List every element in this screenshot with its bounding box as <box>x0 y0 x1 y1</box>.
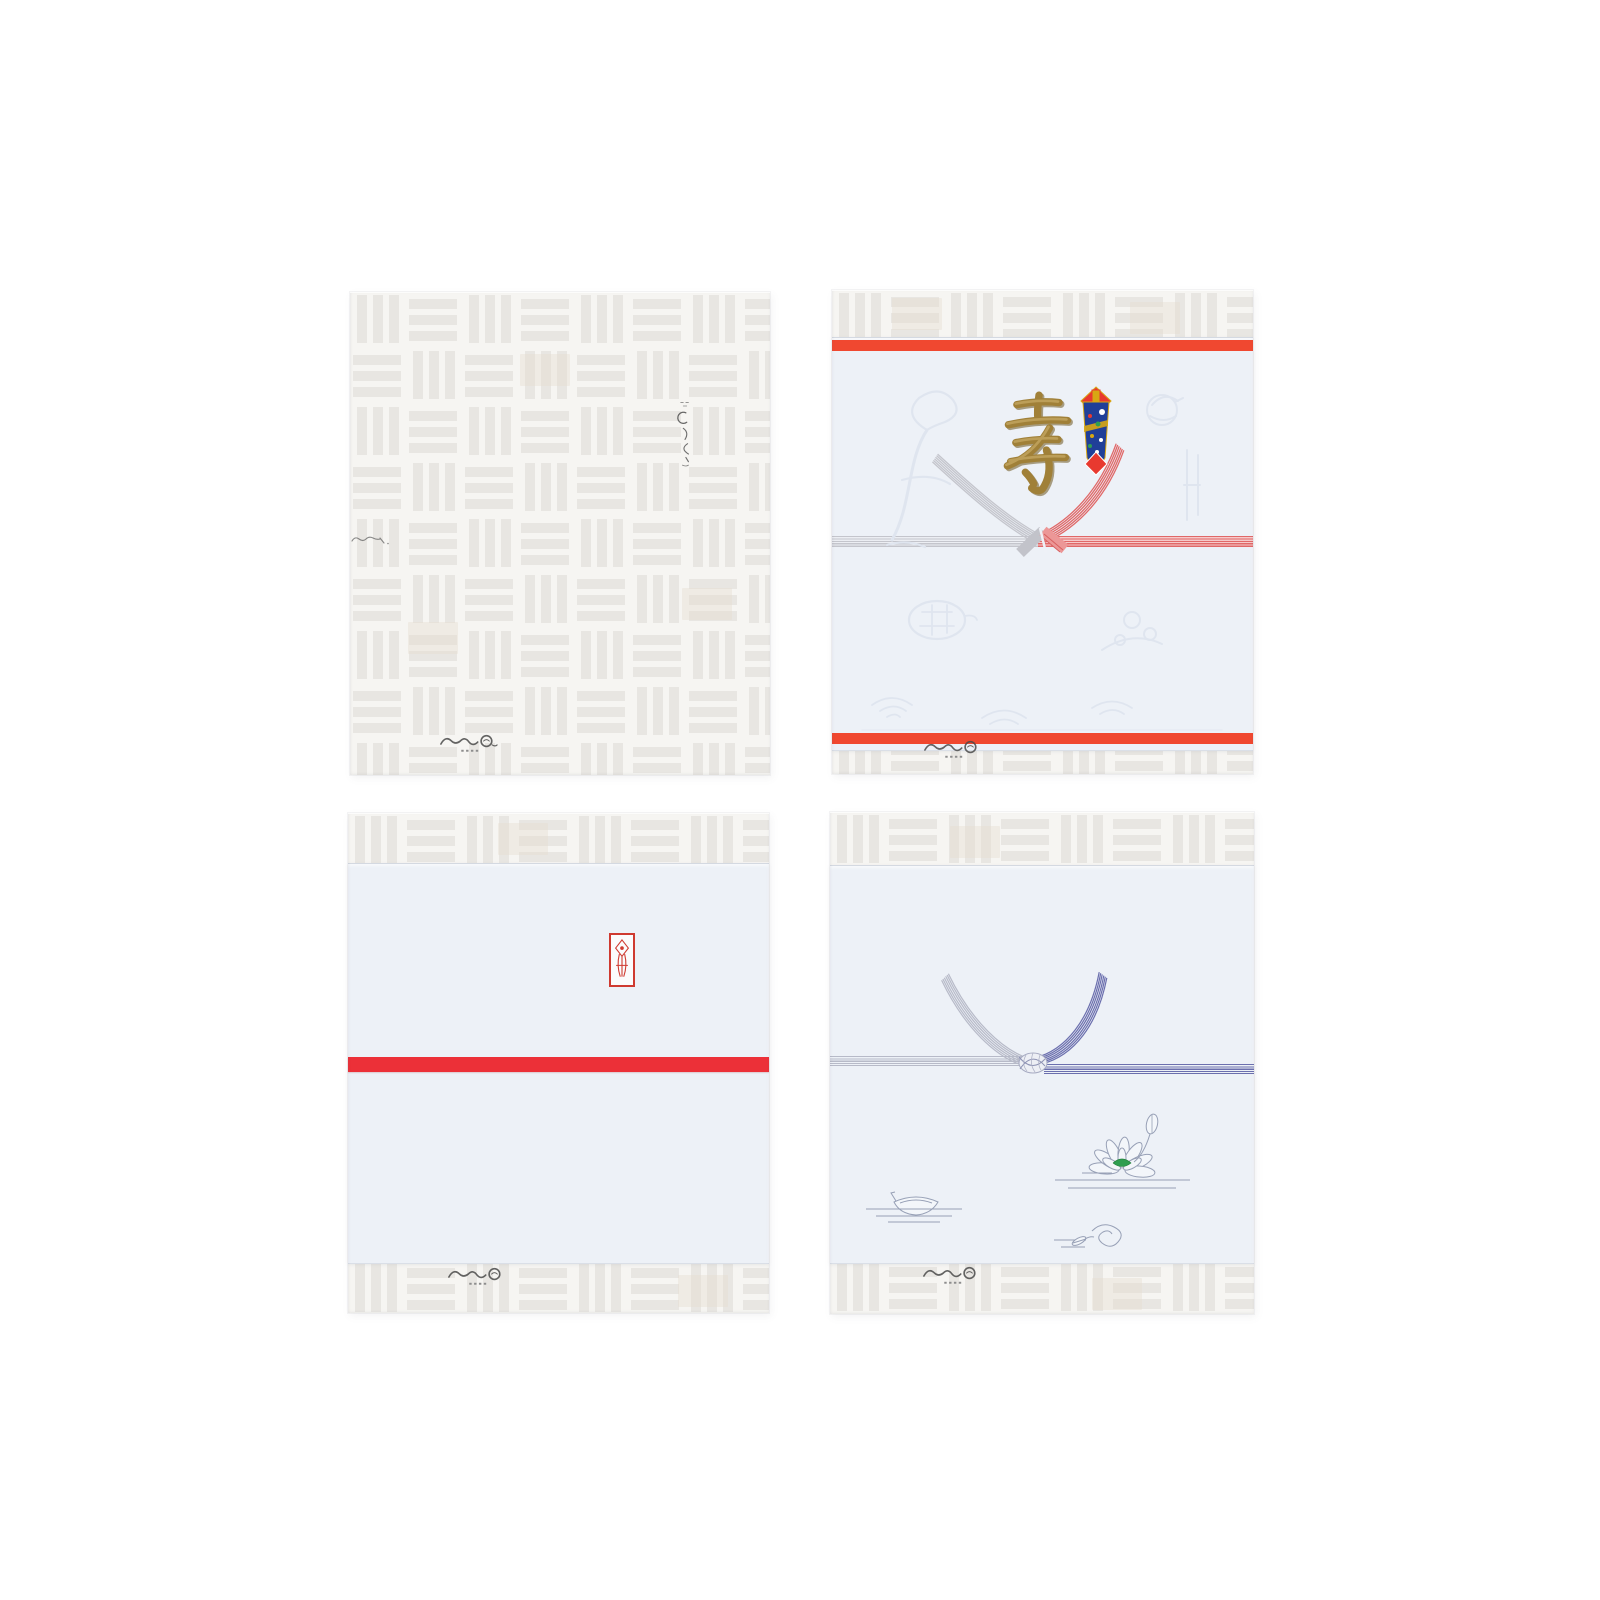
package-red-band-noshi <box>348 813 769 1313</box>
package-celebration-noshi: 寿 <box>832 290 1253 774</box>
noshi-stamp-icon <box>609 933 635 987</box>
brand-logo-icon <box>921 1264 983 1286</box>
brand-logo-icon <box>446 1265 508 1287</box>
mizuhiki-and-buddhist-motifs <box>830 812 1254 1314</box>
brand-calligraphy-side-mark <box>350 532 392 548</box>
brand-calligraphy-vertical <box>672 400 698 472</box>
weave-tint <box>678 1275 728 1307</box>
noshi-wrapping-product-photo: 寿 <box>0 0 1600 1600</box>
lotus-icon <box>1055 1113 1190 1188</box>
weave-tint <box>408 622 458 654</box>
kotobuki-kanji-icon: 寿 <box>1000 392 1076 498</box>
embossed-motifs-and-mizuhiki <box>832 290 1253 774</box>
brand-logo-icon <box>922 738 984 760</box>
mizuhiki-left-strands <box>942 974 1030 1066</box>
mizuhiki-awaji-icon <box>1019 1053 1047 1073</box>
noshi-ornament-icon <box>1078 386 1114 476</box>
weave-tint <box>498 823 548 855</box>
weave-tint <box>520 354 570 386</box>
package-buddhist-noshi <box>830 812 1254 1314</box>
brand-logo-icon <box>438 732 500 754</box>
red-stripe-band <box>348 1057 769 1072</box>
package-plain-wrap <box>350 292 770 775</box>
boat-icon <box>866 1192 962 1222</box>
mizuhiki-right-strands <box>1034 972 1107 1064</box>
weave-tint <box>682 588 732 620</box>
cloud-icon <box>1054 1225 1121 1247</box>
